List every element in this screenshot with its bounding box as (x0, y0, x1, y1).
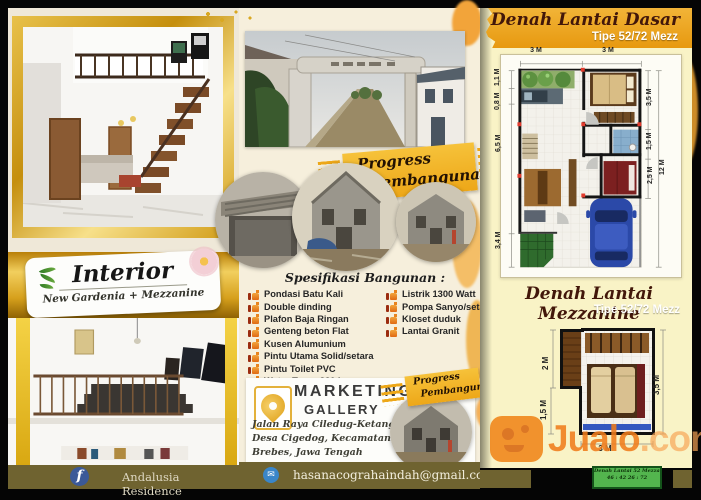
dim-label: 12 M (659, 155, 666, 179)
spec-item: Pintu Toilet PVC (248, 362, 374, 374)
dim-label: 3 M (516, 47, 556, 54)
olive-strip (480, 470, 531, 488)
dim-label: 6,5 M (495, 128, 502, 158)
badge-line-2: 46 : 42 26 : 72 (594, 475, 660, 482)
gold-ribbon-strip-right (225, 318, 237, 465)
dim-label: 0,8 M (494, 90, 501, 112)
dim-label: 1,1 M (494, 66, 501, 88)
floor-plan-1 (500, 54, 682, 278)
gold-speckles (200, 8, 260, 26)
gate-photo (245, 31, 465, 147)
interior-banner: Interior New Gardenia + Mezzanine (25, 250, 221, 318)
plan1-subtitle: Tipe 52/72 Mezz (592, 31, 678, 43)
jualo-watermark: Jualo.com (488, 414, 701, 464)
gallery-title: GALLERY (304, 402, 380, 417)
thumbs-up-icon (386, 289, 397, 300)
mezzanine-photo (8, 318, 239, 465)
dim-label: 3,4 M (495, 226, 502, 254)
thumbs-up-icon (248, 289, 259, 300)
spec-item: Kusen Alumunium (248, 338, 374, 350)
badge-line-1: Denah Lantai 52 Mezzanine (594, 468, 660, 475)
thumbs-up-icon (248, 301, 259, 312)
plan1-title: Denah Lantai Dasar (491, 10, 680, 30)
thumbs-up-icon (386, 326, 397, 337)
spec-item: Double dinding (248, 300, 374, 312)
dim-label: 2 M (541, 352, 550, 374)
olive-strip (673, 470, 692, 488)
spec-list-right: Listrik 1300 Watt Pompa Sanyo/setara Klo… (386, 288, 493, 338)
facebook-page-name: Andalusia Residence (122, 470, 239, 498)
leaf-icon (39, 267, 56, 290)
address-line-3: Brebes, Jawa Tengah (252, 446, 363, 460)
thumbs-up-icon (248, 326, 259, 337)
dim-label: 2,5 M (647, 162, 654, 188)
email-address: hasanacograhaindah@gmail.com (293, 468, 495, 482)
plan1-header: Denah Lantai Dasar Tipe 52/72 Mezz (486, 8, 692, 48)
spec-item: Pintu Utama Solid/setara (248, 350, 374, 362)
left-page: Interior New Gardenia + Mezzanine (8, 8, 239, 489)
facebook-icon: f (70, 467, 89, 486)
dim-label: 1,5 M (646, 128, 653, 154)
car (586, 198, 636, 267)
email-icon: ✉ (263, 467, 279, 483)
email-bar: ✉ hasanacograhaindah@gmail.com (239, 462, 480, 489)
spec-item: Kloset duduk (386, 313, 493, 325)
thumbs-up-icon (386, 313, 397, 324)
spec-item: Pondasi Batu Kali (248, 288, 374, 300)
dim-label: 3,5 M (646, 84, 653, 110)
facebook-bar: f Andalusia Residence (8, 465, 239, 489)
spec-item: Pompa Sanyo/setara (386, 300, 493, 312)
plan2-badge: Denah Lantai 52 Mezzanine 46 : 42 26 : 7… (592, 466, 662, 489)
spec-heading: Spesifikasi Bangunan : (270, 270, 460, 285)
interior-photo-frame (12, 16, 234, 238)
spec-item: Listrik 1300 Watt (386, 288, 493, 300)
dim-label: 3,5 M (652, 370, 661, 400)
thumbs-up-icon (248, 363, 259, 374)
dim-label: 3 M (588, 47, 628, 54)
progress-photo-3 (396, 182, 476, 262)
thumbs-up-icon (248, 351, 259, 362)
spec-item: Lantai Granit (386, 325, 493, 337)
interior-living-photo (23, 27, 223, 227)
jualo-logo-icon (490, 416, 543, 462)
thumbs-up-icon (248, 313, 259, 324)
page-fold-shadow (480, 8, 492, 468)
plan2-subtitle: Tipe 52/72 Mezz (560, 304, 680, 316)
jualo-wordmark: Jualo.com (548, 418, 701, 460)
spec-list-left: Pondasi Batu Kali Double dinding Plafon … (248, 288, 374, 387)
spec-item: Genteng beton Flat (248, 325, 374, 337)
thumbs-up-icon (248, 338, 259, 349)
thumbs-up-icon (386, 301, 397, 312)
progress-photo-2 (292, 163, 400, 271)
brochure-scan: Interior New Gardenia + Mezzanine (0, 0, 701, 500)
spec-item: Plafon Baja Ringan (248, 313, 374, 325)
gold-ribbon-strip-left (16, 318, 30, 465)
